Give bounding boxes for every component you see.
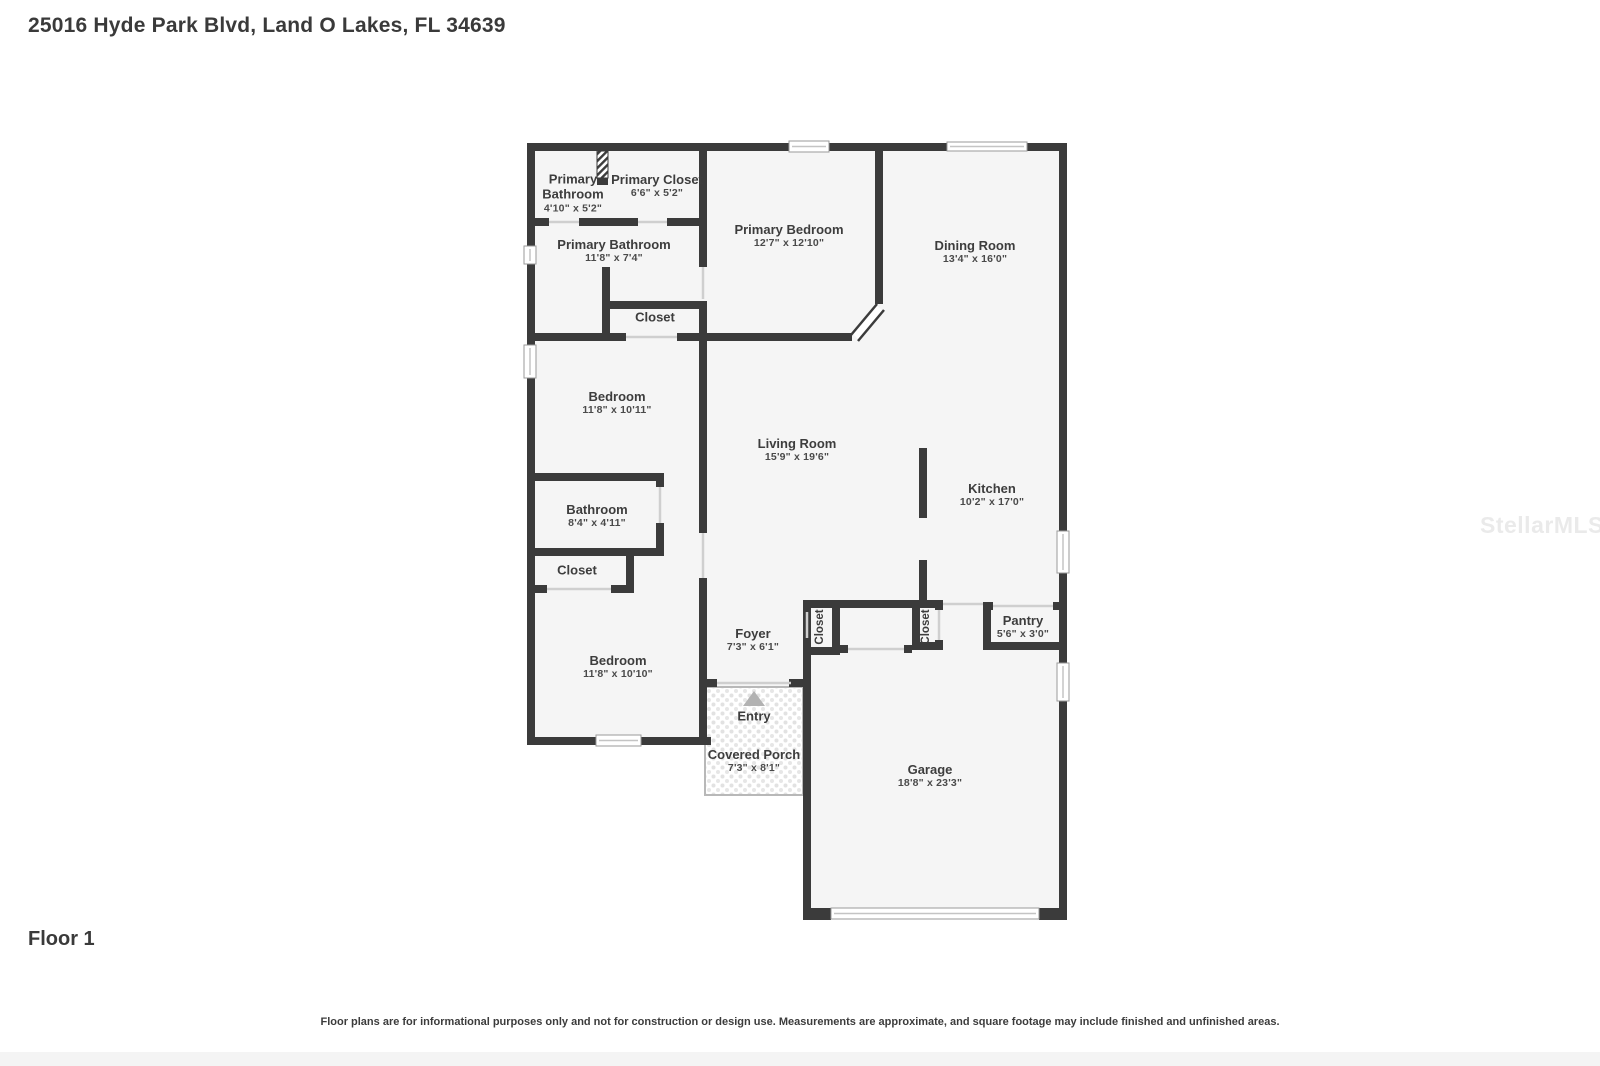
room-label-covered-porch: Covered Porch7'3" x 8'1" (708, 747, 800, 775)
room-label-bathroom: Bathroom8'4" x 4'11" (566, 502, 627, 530)
room-label-primary-bedroom: Primary Bedroom12'7" x 12'10" (734, 222, 843, 250)
room-name: Closet (920, 609, 934, 644)
room-dims: 8'4" x 4'11" (566, 517, 627, 529)
room-label-primary-bathroom-upper: Primary Bathroom4'10" x 5'2" (534, 171, 612, 214)
room-label-dining-room: Dining Room13'4" x 16'0" (935, 238, 1016, 266)
room-name: Primary Bathroom (557, 237, 670, 252)
room-dims: 4'10" x 5'2" (534, 202, 612, 214)
room-label-closet-kitchen: Closet (920, 609, 934, 644)
room-name: Primary Bathroom (534, 171, 612, 202)
room-name: Entry (737, 708, 770, 723)
room-label-foyer: Foyer7'3" x 6'1" (727, 626, 779, 654)
room-dims: 12'7" x 12'10" (734, 237, 843, 249)
room-dims: 15'9" x 19'6" (758, 451, 837, 463)
room-name: Dining Room (935, 238, 1016, 253)
room-label-primary-closet: Primary Closet6'6" x 5'2" (611, 172, 703, 200)
room-dims: 6'6" x 5'2" (611, 187, 703, 199)
room-name: Closet (635, 309, 675, 324)
room-dims: 7'3" x 8'1" (708, 762, 800, 774)
watermark: StellarMLS (1480, 512, 1600, 539)
room-name: Closet (557, 562, 597, 577)
room-name: Pantry (997, 613, 1049, 628)
room-label-closet-primary: Closet (635, 309, 675, 324)
room-name: Primary Bedroom (734, 222, 843, 237)
bottom-strip (0, 1052, 1600, 1066)
room-name: Foyer (727, 626, 779, 641)
room-dims: 13'4" x 16'0" (935, 253, 1016, 265)
room-name: Bedroom (582, 389, 651, 404)
room-name: Closet (814, 609, 828, 644)
room-name: Bathroom (566, 502, 627, 517)
room-name: Covered Porch (708, 747, 800, 762)
room-label-living-room: Living Room15'9" x 19'6" (758, 436, 837, 464)
room-dims: 5'6" x 3'0" (997, 628, 1049, 640)
room-label-bedroom-1: Bedroom11'8" x 10'11" (582, 389, 651, 417)
floor-label: Floor 1 (28, 928, 95, 951)
room-name: Primary Closet (611, 172, 703, 187)
room-label-pantry: Pantry5'6" x 3'0" (997, 613, 1049, 641)
room-dims: 10'2" x 17'0" (960, 496, 1024, 508)
floor-plan-page: 25016 Hyde Park Blvd, Land O Lakes, FL 3… (0, 0, 1600, 1066)
room-dims: 7'3" x 6'1" (727, 641, 779, 653)
room-label-bedroom-2: Bedroom11'8" x 10'10" (583, 653, 653, 681)
room-name: Kitchen (960, 481, 1024, 496)
room-label-kitchen: Kitchen10'2" x 17'0" (960, 481, 1024, 509)
room-label-primary-bathroom: Primary Bathroom11'8" x 7'4" (557, 237, 670, 265)
floor-plan-drawing (0, 0, 1600, 1066)
room-dims: 11'8" x 7'4" (557, 252, 670, 264)
disclaimer-text: Floor plans are for informational purpos… (0, 1016, 1600, 1028)
room-name: Living Room (758, 436, 837, 451)
room-dims: 11'8" x 10'11" (582, 404, 651, 416)
room-dims: 18'8" x 23'3" (898, 777, 962, 789)
room-label-closet-foyer: Closet (814, 609, 828, 644)
room-dims: 11'8" x 10'10" (583, 668, 653, 680)
room-name: Garage (898, 762, 962, 777)
room-label-closet-hall: Closet (557, 562, 597, 577)
room-label-garage: Garage18'8" x 23'3" (898, 762, 962, 790)
room-label-entry: Entry (737, 708, 770, 723)
room-name: Bedroom (583, 653, 653, 668)
